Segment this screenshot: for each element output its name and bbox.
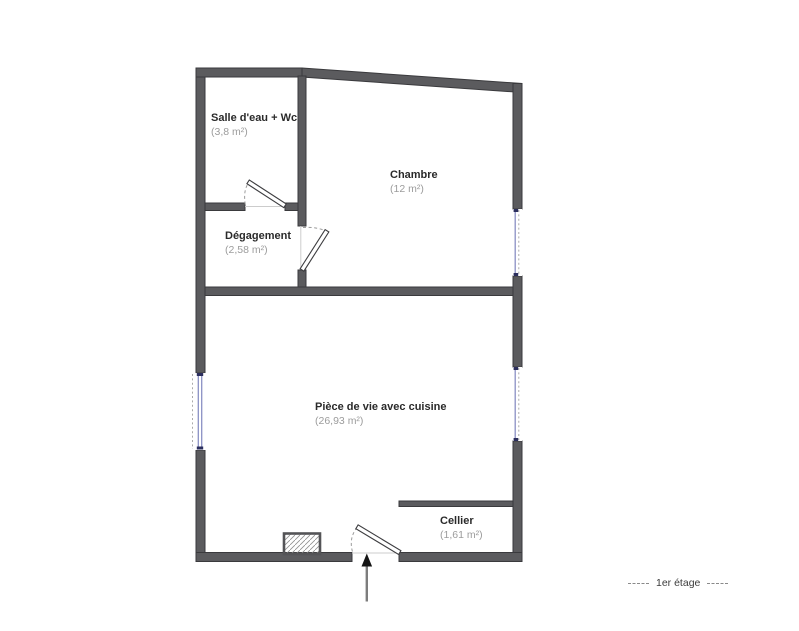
room-label-degagement: Dégagement (2,58 m²): [225, 230, 291, 257]
bathroom-hall-wall-left: [205, 203, 245, 211]
room-area: (2,58 m²): [225, 244, 291, 257]
walls: [196, 68, 522, 562]
floor-plan-drawing: [0, 0, 799, 631]
left-wall-upper: [196, 68, 205, 373]
chimney-hatch: [284, 534, 320, 555]
bottom-wall-right: [399, 553, 522, 562]
window-left-living: [193, 373, 207, 450]
room-label-cellier: Cellier (1,61 m²): [440, 515, 483, 542]
window-right-living: [513, 367, 522, 441]
right-wall-top: [513, 84, 522, 210]
hall-bedroom-wall-upper: [298, 76, 306, 226]
entrance-arrow-icon: [362, 554, 373, 602]
cellar-wall: [399, 501, 513, 507]
room-label-piece-de-vie: Pièce de vie avec cuisine (26,93 m²): [315, 401, 446, 428]
top-wall-sloped: [302, 68, 522, 93]
door-entry: [351, 525, 401, 555]
door-bathroom: [245, 180, 287, 208]
room-area: (1,61 m²): [440, 529, 483, 542]
dash-line-right: [707, 583, 728, 584]
bedroom-living-wall: [205, 287, 513, 296]
bottom-wall-left: [196, 553, 352, 562]
floor-level-label: 1er étage: [628, 577, 728, 589]
door-bedroom: [300, 226, 329, 271]
room-name: Dégagement: [225, 230, 291, 243]
top-wall-left: [196, 68, 302, 77]
floor-plan-page: Salle d'eau + Wc (3,8 m²) Chambre (12 m²…: [0, 0, 799, 631]
dash-line-left: [628, 583, 649, 584]
room-area: (12 m²): [390, 183, 438, 196]
room-name: Pièce de vie avec cuisine: [315, 401, 446, 414]
room-name: Salle d'eau + Wc: [211, 112, 297, 125]
window-right-bedroom: [513, 209, 522, 276]
left-wall-lower: [196, 450, 205, 562]
room-name: Cellier: [440, 515, 483, 528]
room-label-chambre: Chambre (12 m²): [390, 169, 438, 196]
right-wall-bottom: [513, 441, 522, 562]
room-label-salle-deau: Salle d'eau + Wc (3,8 m²): [211, 112, 297, 139]
room-name: Chambre: [390, 169, 438, 182]
floor-label-text: 1er étage: [656, 577, 700, 589]
room-area: (26,93 m²): [315, 415, 446, 428]
right-wall-middle: [513, 276, 522, 367]
room-area: (3,8 m²): [211, 126, 297, 139]
